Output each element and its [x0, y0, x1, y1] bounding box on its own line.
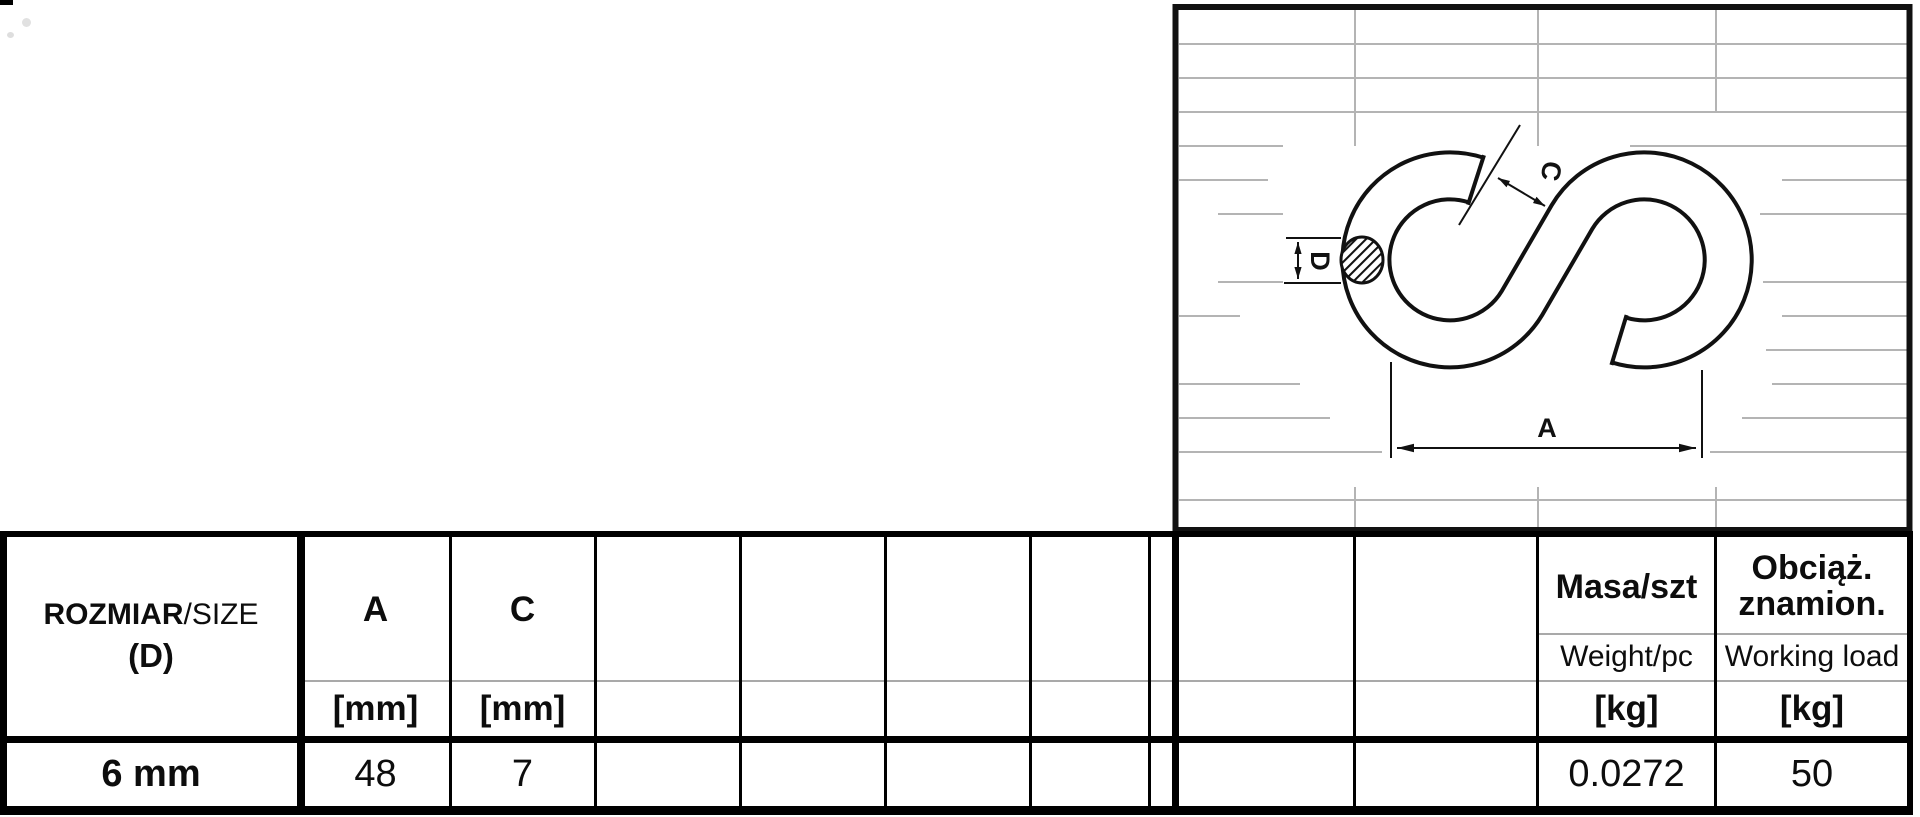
wire-cross-section [1341, 237, 1383, 283]
header-load-unit: [kg] [1717, 684, 1907, 734]
table-right-border [1907, 531, 1913, 815]
table-col-line [739, 531, 742, 815]
cell-load-value: 50 [1717, 744, 1907, 804]
scan-speckle [7, 32, 14, 38]
header-load-label-line2: znamion. [1738, 587, 1885, 623]
table-bottom-border [0, 806, 1913, 815]
cell-c-value: 7 [451, 744, 594, 804]
cell-mass-value: 0.0272 [1539, 744, 1714, 804]
table-col-line [1353, 531, 1356, 815]
header-size: ROZMIAR/SIZE (D) [8, 537, 294, 736]
table-col-line [449, 531, 452, 815]
table-col-line [594, 531, 597, 815]
header-mass-label: Masa/szt [1539, 543, 1714, 631]
cell-size-value: 6 mm [8, 744, 294, 804]
header-a-label: A [304, 543, 447, 677]
table-header-separator [0, 736, 1913, 743]
right-loop-hole [1587, 203, 1701, 317]
subheader-divider [302, 680, 1907, 682]
s-hook-technical-drawing: D C A [1160, 0, 1920, 545]
header-c-unit: [mm] [451, 684, 594, 734]
header-size-pl: ROZMIAR [44, 598, 184, 631]
table-col-line [884, 531, 887, 815]
table-col-line [1536, 531, 1539, 815]
table-col-line [1148, 531, 1151, 815]
header-size-en: /SIZE [183, 598, 258, 631]
table-col-line [1714, 531, 1717, 815]
header-a-unit: [mm] [304, 684, 447, 734]
header-load-label: Obciąż. znamion. [1717, 540, 1907, 633]
table-top-border [0, 531, 1913, 537]
header-mass-unit: [kg] [1539, 684, 1714, 734]
header-c-label: C [451, 543, 594, 677]
scan-corner-mark [0, 0, 13, 5]
header-size-line1: ROZMIAR/SIZE [44, 598, 259, 632]
table-col-line-thick [297, 531, 305, 815]
header-size-line2: (D) [128, 638, 174, 675]
header-load-label-line1: Obciąż. [1752, 551, 1873, 587]
catalog-page: D C A ROZMIAR/SIZE (D) A [mm] C [mm] Mas… [0, 0, 1920, 817]
header-mass-sub: Weight/pc [1539, 635, 1714, 679]
table-left-border [0, 531, 7, 815]
dim-d-label: D [1305, 251, 1335, 271]
dim-a-label: A [1537, 413, 1557, 443]
header-load-sub: Working load [1717, 635, 1907, 679]
table-col-line [1029, 531, 1032, 815]
table-col-line-thick [1172, 531, 1179, 815]
scan-speckle [22, 18, 31, 27]
cell-a-value: 48 [304, 744, 447, 804]
left-loop-hole [1393, 203, 1507, 317]
